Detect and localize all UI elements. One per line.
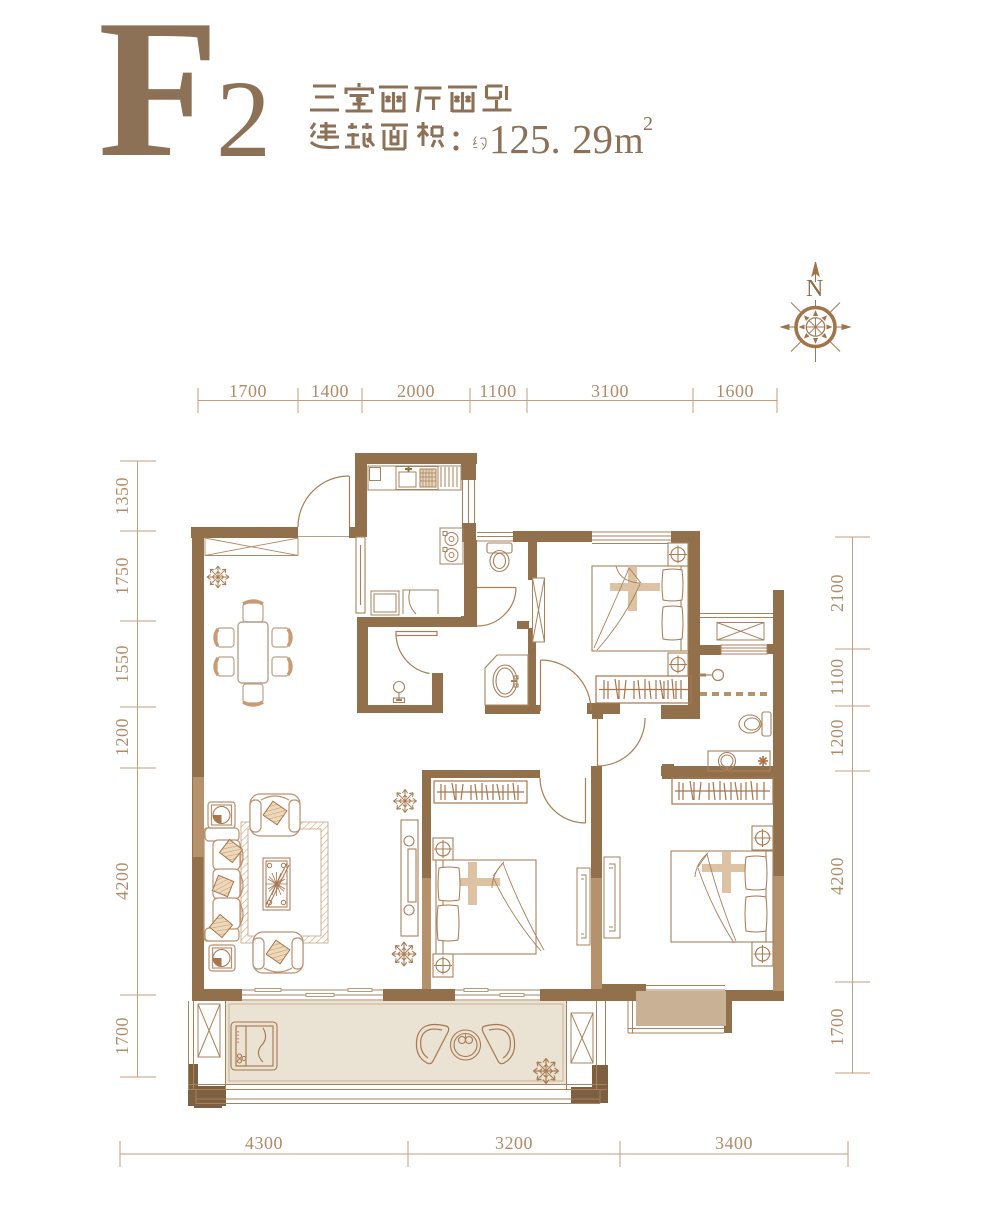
svg-text:4300: 4300	[245, 1133, 283, 1153]
svg-text:3400: 3400	[715, 1133, 753, 1153]
svg-text:1200: 1200	[112, 718, 132, 756]
svg-text:1400: 1400	[311, 381, 349, 401]
svg-text:4200: 4200	[827, 857, 847, 895]
svg-text:1100: 1100	[479, 381, 516, 401]
svg-text:1550: 1550	[112, 645, 132, 683]
svg-text:1200: 1200	[827, 719, 847, 757]
svg-text:1100: 1100	[827, 658, 847, 695]
svg-text:1750: 1750	[112, 557, 132, 595]
svg-text:2: 2	[216, 58, 271, 180]
svg-text:29: 29	[572, 116, 613, 162]
svg-text:125.: 125.	[489, 116, 561, 162]
svg-text:2100: 2100	[827, 574, 847, 612]
svg-text:N: N	[806, 276, 823, 302]
svg-text:3100: 3100	[591, 381, 629, 401]
svg-text:1350: 1350	[112, 477, 132, 515]
svg-text:m: m	[614, 120, 644, 162]
svg-text:3200: 3200	[495, 1133, 533, 1153]
svg-text:2000: 2000	[397, 381, 435, 401]
svg-text:1600: 1600	[716, 381, 754, 401]
svg-text:F: F	[98, 0, 219, 198]
svg-text:2: 2	[643, 113, 653, 135]
svg-text:1700: 1700	[112, 1017, 132, 1055]
svg-text:1700: 1700	[827, 1008, 847, 1046]
svg-text:1700: 1700	[229, 381, 267, 401]
svg-text:4200: 4200	[112, 862, 132, 900]
